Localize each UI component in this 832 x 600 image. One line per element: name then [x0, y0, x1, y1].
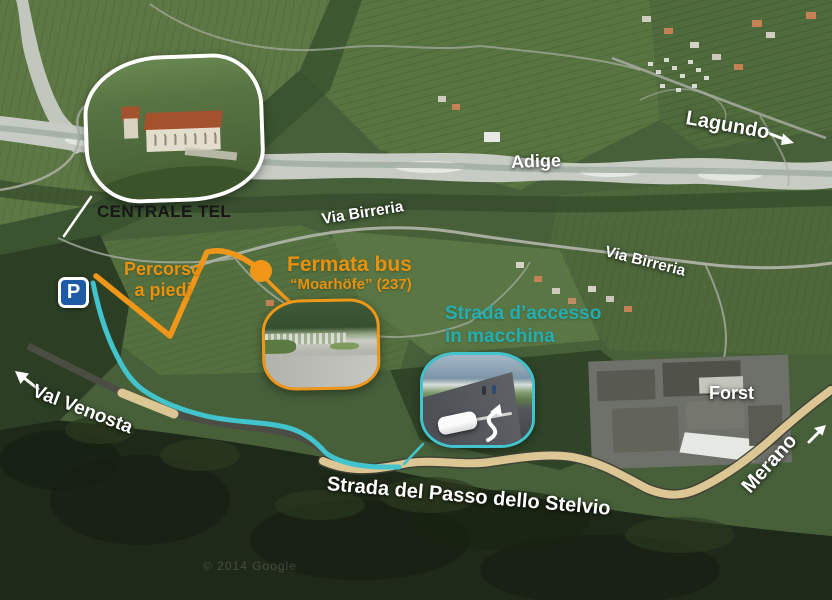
centrale-tel-photo-inset [81, 52, 266, 205]
strada-accesso-label: Strada d’accesso in macchina [445, 303, 601, 349]
strada-accesso-line2: in macchina [445, 326, 555, 347]
merano-arrow-icon [809, 425, 826, 442]
cyclist [492, 385, 496, 394]
orchard-trees [265, 340, 297, 354]
parking-letter: P [67, 281, 80, 304]
asphalt-area [261, 355, 381, 391]
access-path [185, 147, 237, 161]
access-road-photo-inset [420, 352, 535, 448]
moarhofe-photo [264, 301, 377, 388]
percorso-line2: a piedi [134, 280, 191, 300]
centrale-tel-photo [86, 56, 263, 201]
access-road-photo [423, 355, 532, 445]
fermata-bus-sublabel: “Moarhöfe” (237) [290, 277, 412, 293]
centrale-tel-label: CENTRALE TEL [97, 203, 231, 221]
route-squiggle-arrow [480, 402, 514, 442]
lagundo-arrow-icon [768, 133, 794, 145]
google-watermark: © 2014 Google [203, 559, 297, 573]
parking-sign-icon: P [58, 277, 89, 308]
strada-accesso-line1: Strada d’accesso [445, 303, 601, 324]
moarhofe-photo-inset [261, 298, 381, 391]
tower-wall [124, 119, 138, 139]
bus-stop-dot [250, 260, 272, 282]
forst-label: Forst [709, 384, 754, 403]
percorso-line1: Percorso [124, 259, 202, 279]
cyclist [482, 386, 486, 395]
centrale-pointer-line [64, 197, 91, 236]
roadside-green [330, 342, 359, 349]
adige-river-label: Adige [511, 151, 562, 172]
fermata-bus-label: Fermata bus [287, 254, 412, 276]
map-infographic: P CENTRALE TEL Lagundo Adige Via Birreri… [0, 0, 832, 600]
moarhofe-inset-connector [264, 277, 291, 303]
percorso-a-piedi-label: Percorso a piedi [116, 259, 210, 300]
